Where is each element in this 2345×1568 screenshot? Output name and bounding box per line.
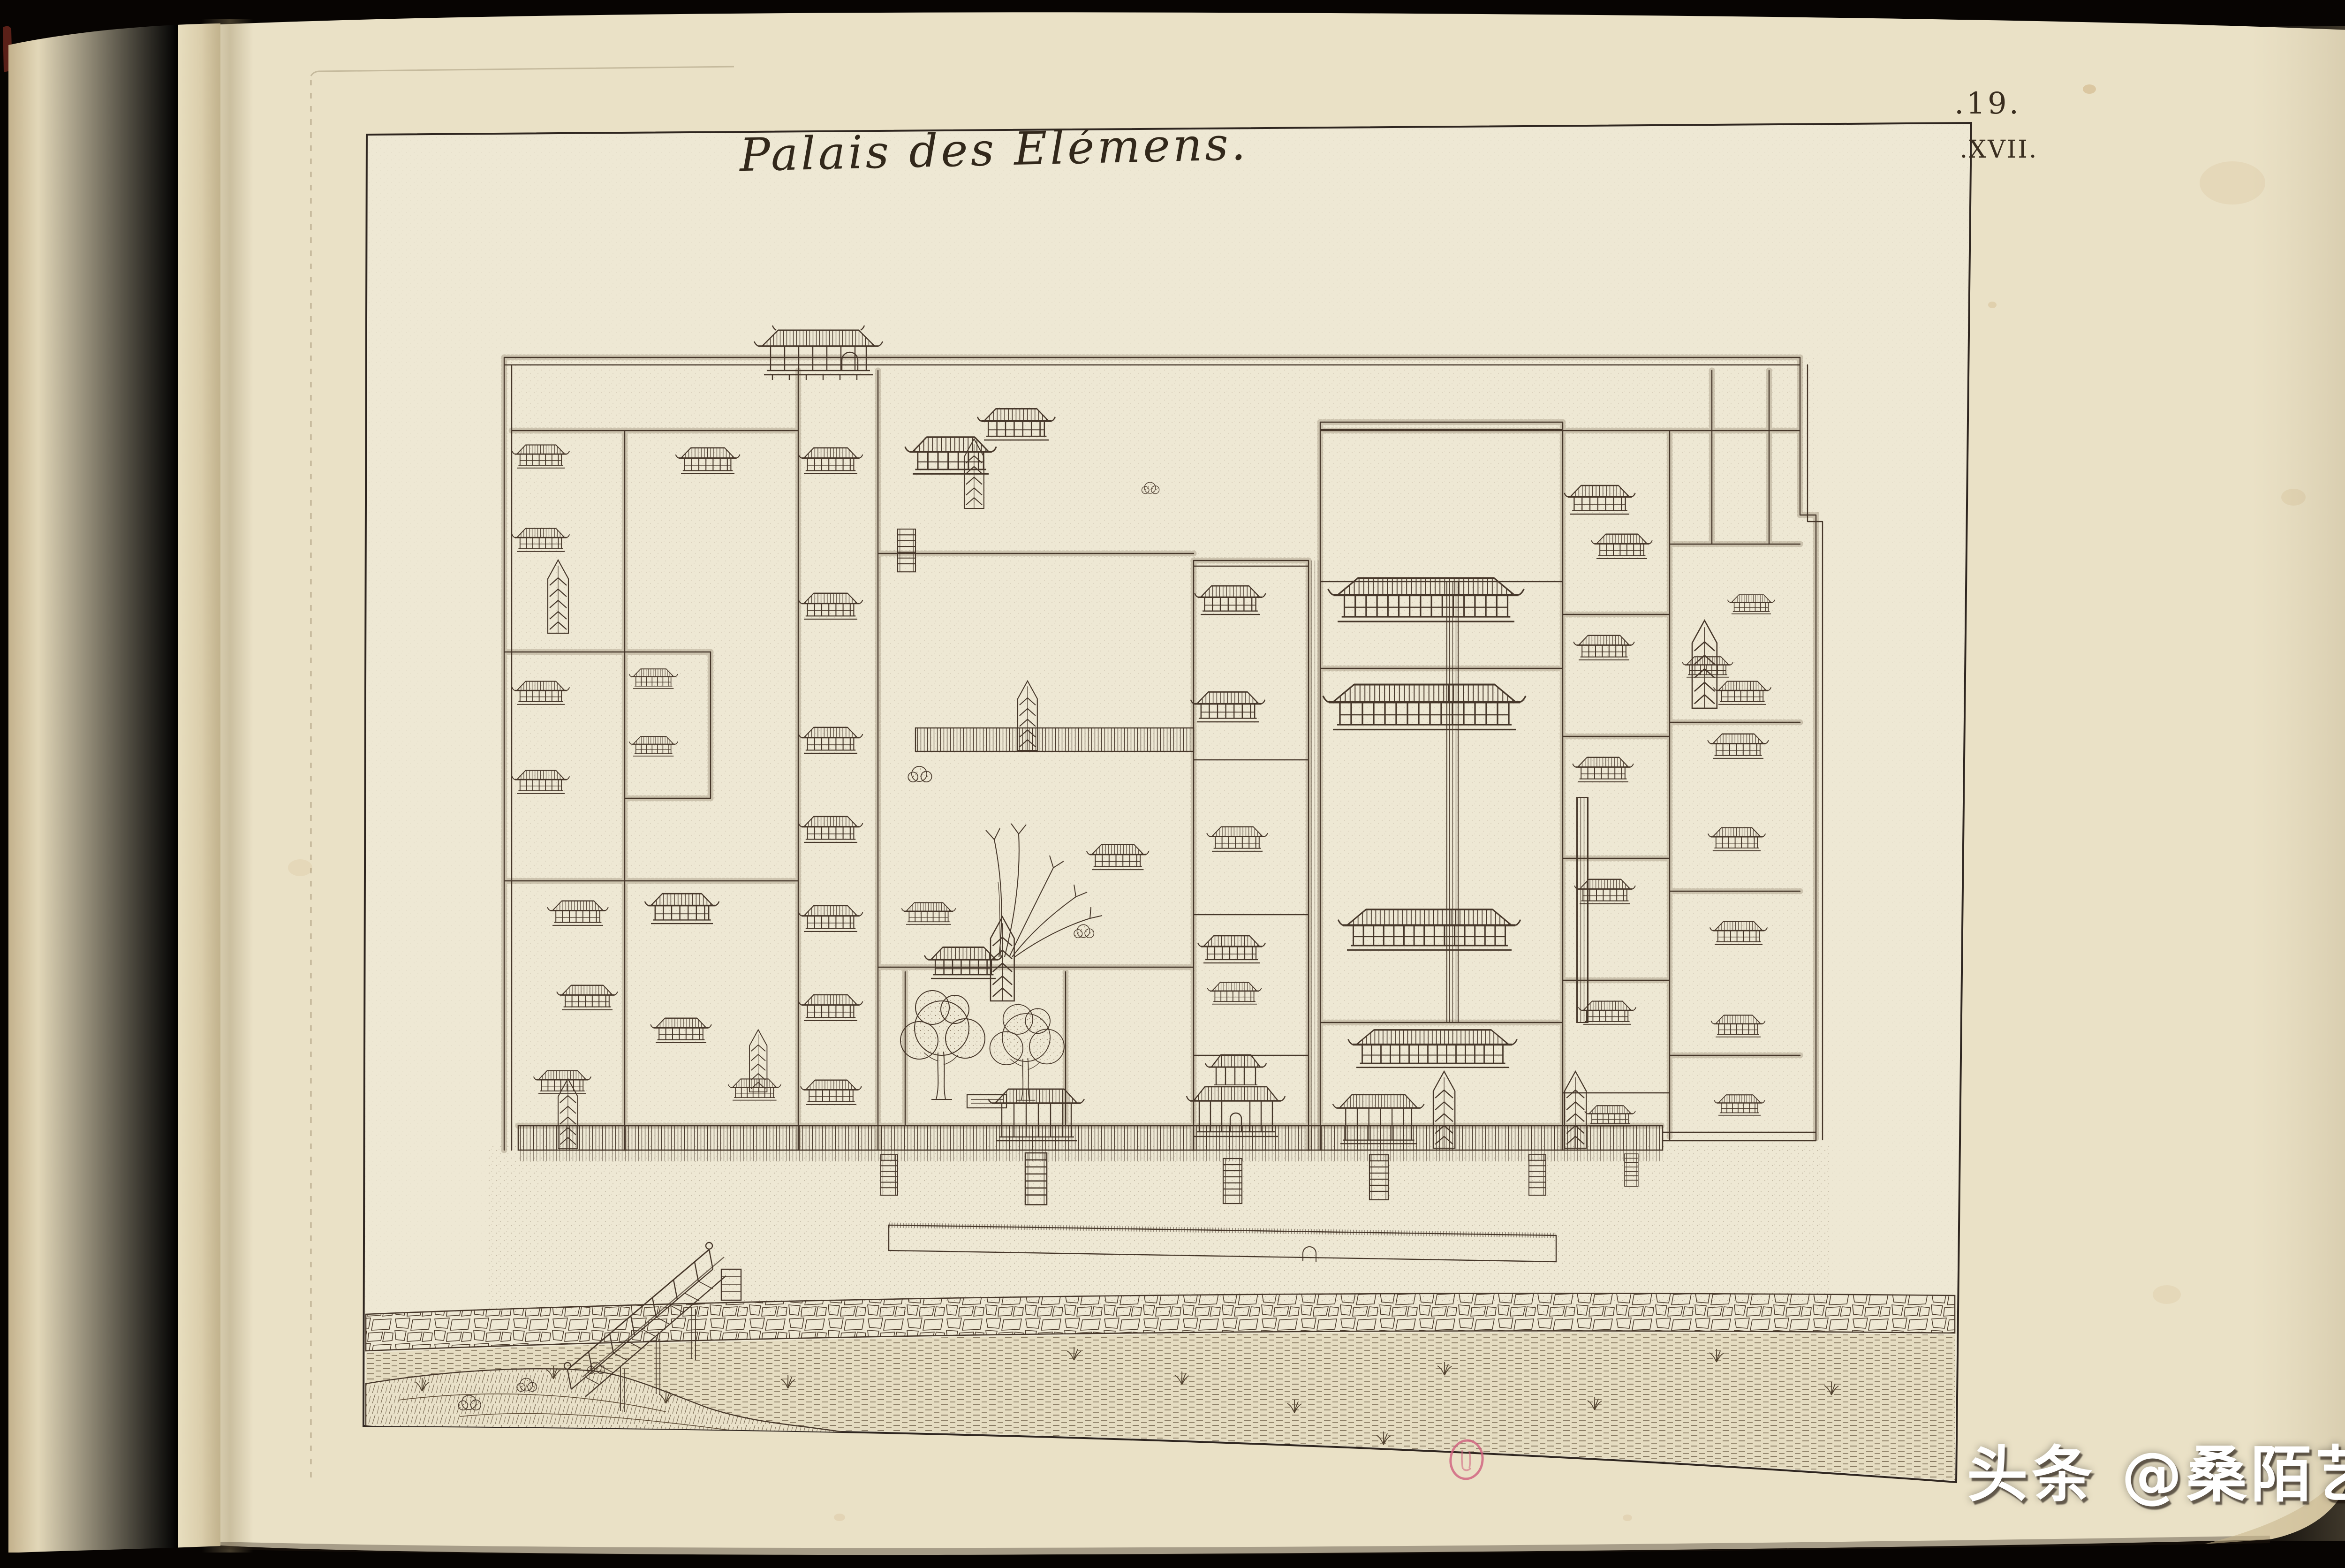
palace-plan-engraving: [366, 326, 1955, 1485]
book-left-page: [8, 23, 220, 1553]
gutter-shadow: [202, 19, 253, 1553]
book-photo: Palais des Elémens. .19. .XVII. 头条 @桑陌艺术: [0, 0, 2345, 1568]
plate-number: .19.: [1954, 86, 2021, 121]
plate-roman-numeral: .XVII.: [1960, 136, 2038, 164]
fore-edge-shadow: [2251, 26, 2345, 1541]
watermark: 头条 @桑陌艺术: [1967, 1425, 2345, 1514]
foreshore-ground: [488, 1144, 1829, 1313]
